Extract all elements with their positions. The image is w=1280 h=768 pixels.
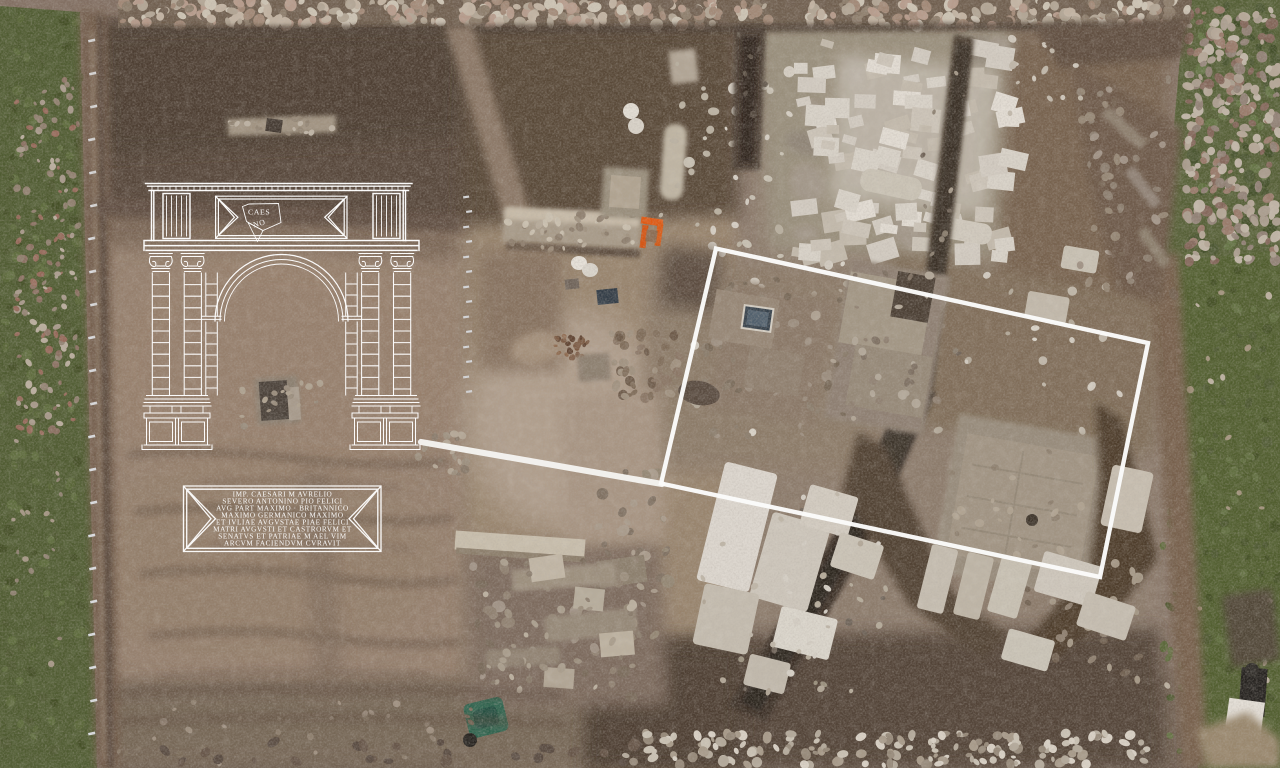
svg-text:ARCVM FACIENDVM CVRAVIT: ARCVM FACIENDVM CVRAVIT: [224, 540, 341, 548]
svg-text:CAES: CAES: [248, 208, 270, 217]
